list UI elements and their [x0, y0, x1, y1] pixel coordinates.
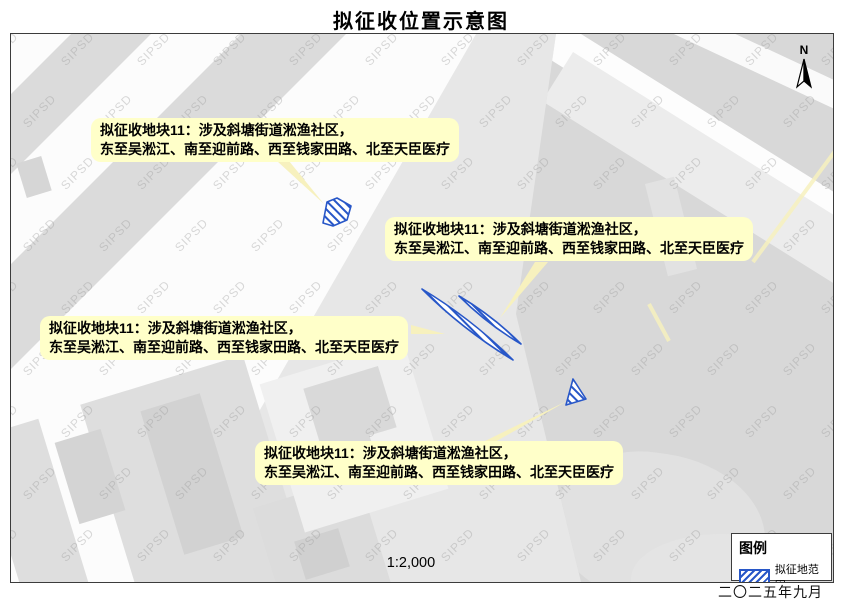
map-date: 二〇二五年九月 — [718, 582, 823, 602]
map-overlay-svg — [11, 34, 833, 582]
callout-text-line2: 东至吴淞江、南至迎前路、西至钱家田路、北至天臣医疗 — [264, 463, 614, 482]
legend-item: 拟征地范围 — [739, 561, 824, 583]
callout-parcel11-1: 拟征收地块11：涉及斜塘街道淞渔社区， 东至吴淞江、南至迎前路、西至钱家田路、北… — [91, 118, 459, 162]
expropriation-parcel — [566, 379, 586, 405]
north-arrow: N — [791, 44, 817, 94]
highlight-line — [649, 304, 669, 341]
callout-text-line2: 东至吴淞江、南至迎前路、西至钱家田路、北至天臣医疗 — [100, 140, 450, 159]
callout-text-line2: 东至吴淞江、南至迎前路、西至钱家田路、北至天臣医疗 — [49, 338, 399, 357]
legend-box: 图例 拟征地范围 — [731, 533, 832, 581]
callout-parcel11-4: 拟征收地块11：涉及斜塘街道淞渔社区， 东至吴淞江、南至迎前路、西至钱家田路、北… — [255, 441, 623, 485]
scale-text: 1:2,000 — [331, 555, 491, 571]
callout-leader — [277, 161, 324, 204]
north-label: N — [791, 44, 817, 57]
north-arrow-icon — [794, 57, 814, 89]
hatch-swatch-icon — [739, 569, 770, 583]
callout-text-line1: 拟征收地块11：涉及斜塘街道淞渔社区， — [394, 220, 744, 239]
expropriation-parcel — [323, 198, 351, 226]
highlight-line — [753, 143, 833, 262]
callout-parcel11-3: 拟征收地块11：涉及斜塘街道淞渔社区， 东至吴淞江、南至迎前路、西至钱家田路、北… — [40, 316, 408, 360]
callout-parcel11-2: 拟征收地块11：涉及斜塘街道淞渔社区， 东至吴淞江、南至迎前路、西至钱家田路、北… — [385, 217, 753, 261]
callout-leader — [500, 262, 548, 318]
callout-text-line2: 东至吴淞江、南至迎前路、西至钱家田路、北至天臣医疗 — [394, 239, 744, 258]
callout-text-line1: 拟征收地块11：涉及斜塘街道淞渔社区， — [264, 444, 614, 463]
callout-text-line1: 拟征收地块11：涉及斜塘街道淞渔社区， — [100, 121, 450, 140]
legend-item-label: 拟征地范围 — [775, 561, 824, 583]
callout-leader — [411, 325, 445, 334]
legend-title: 图例 — [739, 538, 824, 558]
page-title: 拟征收位置示意图 — [0, 5, 842, 34]
map-canvas: SIPSDSIPSDSIPSDSIPSDSIPSDSIPSDSIPSDSIPSD… — [10, 33, 834, 583]
callout-text-line1: 拟征收地块11：涉及斜塘街道淞渔社区， — [49, 319, 399, 338]
callout-leader — [483, 401, 567, 442]
